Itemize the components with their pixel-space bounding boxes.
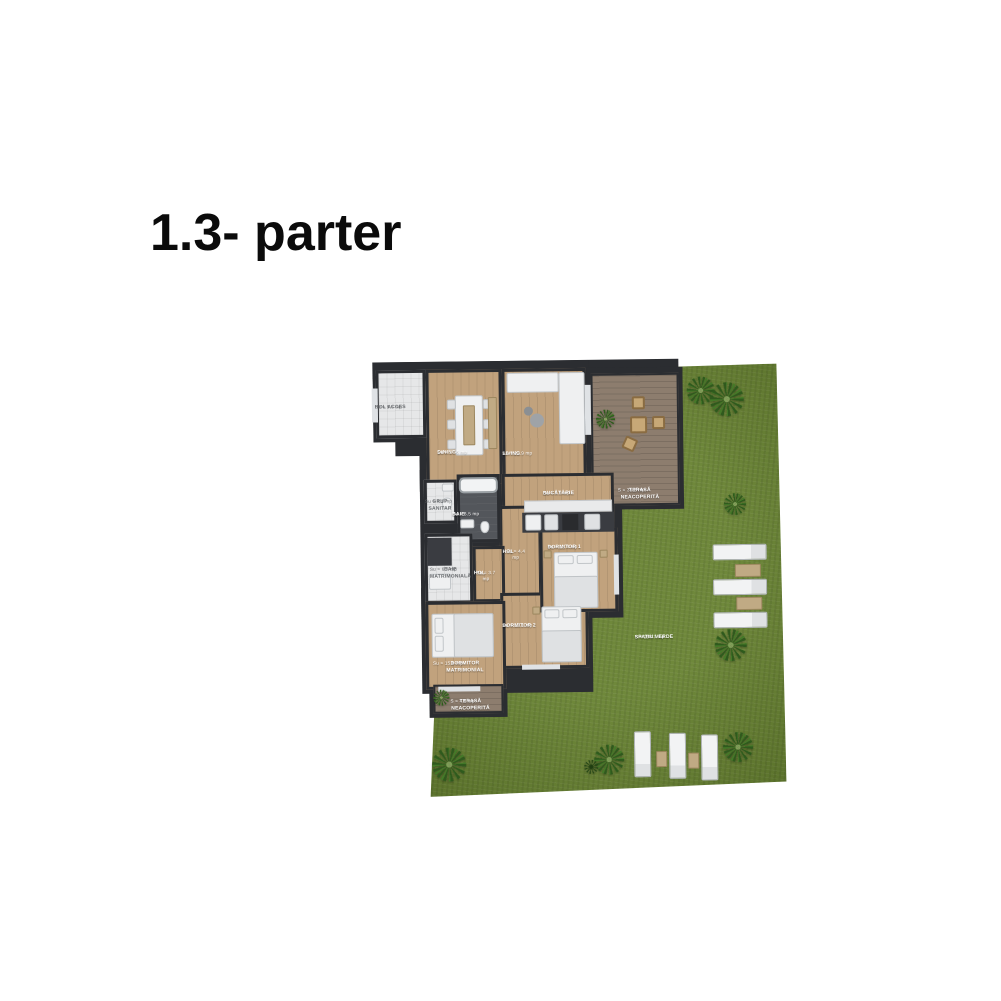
toilet [480, 521, 489, 533]
sun-lounger [701, 734, 719, 780]
stove [562, 514, 578, 530]
window [614, 555, 619, 595]
page-title: 1.3- parter [150, 203, 401, 263]
shower [427, 538, 451, 566]
bed-blanket [542, 630, 582, 662]
dining-chair [447, 400, 456, 410]
room-label-bedroom-master: DORMITOR MATRIMONIALSu = 15.8 mp [433, 660, 497, 661]
sofa [506, 372, 558, 393]
bathroom-sink [460, 519, 474, 528]
fridge [525, 514, 541, 530]
terrace-table [630, 416, 647, 433]
palm-plant-icon [724, 493, 746, 515]
sun-lounger [713, 544, 767, 561]
kitchen-sink [584, 514, 600, 530]
pillow [577, 555, 593, 564]
bed-blanket [453, 613, 494, 657]
page: 1.3- parter [0, 0, 1001, 1001]
pillow [435, 636, 444, 652]
side-table [735, 564, 761, 577]
floor-plan: HOL ACCESSu = 5.5 mp DININGSu = 17.6 mp … [370, 357, 789, 804]
side-table [736, 597, 762, 610]
bed-blanket [554, 576, 598, 609]
side-pouf [524, 407, 533, 416]
sun-lounger [634, 731, 652, 777]
side-table [688, 753, 699, 769]
nightstand [532, 606, 540, 614]
sun-lounger [669, 733, 687, 779]
potted-plant-icon [433, 690, 449, 706]
kitchen-cabinets [524, 500, 612, 513]
kitchen-appliance [544, 514, 558, 530]
palm-plant-icon [432, 747, 466, 781]
pillow [434, 618, 443, 634]
pillow [544, 609, 559, 618]
window [585, 385, 592, 435]
sofa-chaise [558, 372, 585, 444]
potted-plant-icon [596, 410, 615, 429]
dining-chair [447, 440, 456, 450]
terrace-chair [652, 416, 665, 429]
palm-plant-icon [715, 629, 747, 661]
wc-sink [442, 484, 454, 492]
bathtub [459, 477, 498, 493]
small-plant-icon [584, 760, 598, 774]
terrace-chair [632, 396, 645, 409]
sun-lounger [713, 579, 767, 596]
terrace-label-main: TERASĂ NEACOPERITĂS = 35.8 mp [618, 487, 662, 488]
pillow [558, 555, 574, 564]
coffee-table [530, 413, 544, 427]
nightstand [600, 550, 608, 558]
nightstand [544, 550, 552, 558]
dining-chair [447, 420, 456, 430]
sun-lounger [713, 612, 767, 629]
sideboard [488, 397, 498, 449]
table-runner [463, 405, 475, 445]
side-table [656, 751, 667, 767]
pillow [562, 609, 577, 618]
window [522, 664, 560, 669]
